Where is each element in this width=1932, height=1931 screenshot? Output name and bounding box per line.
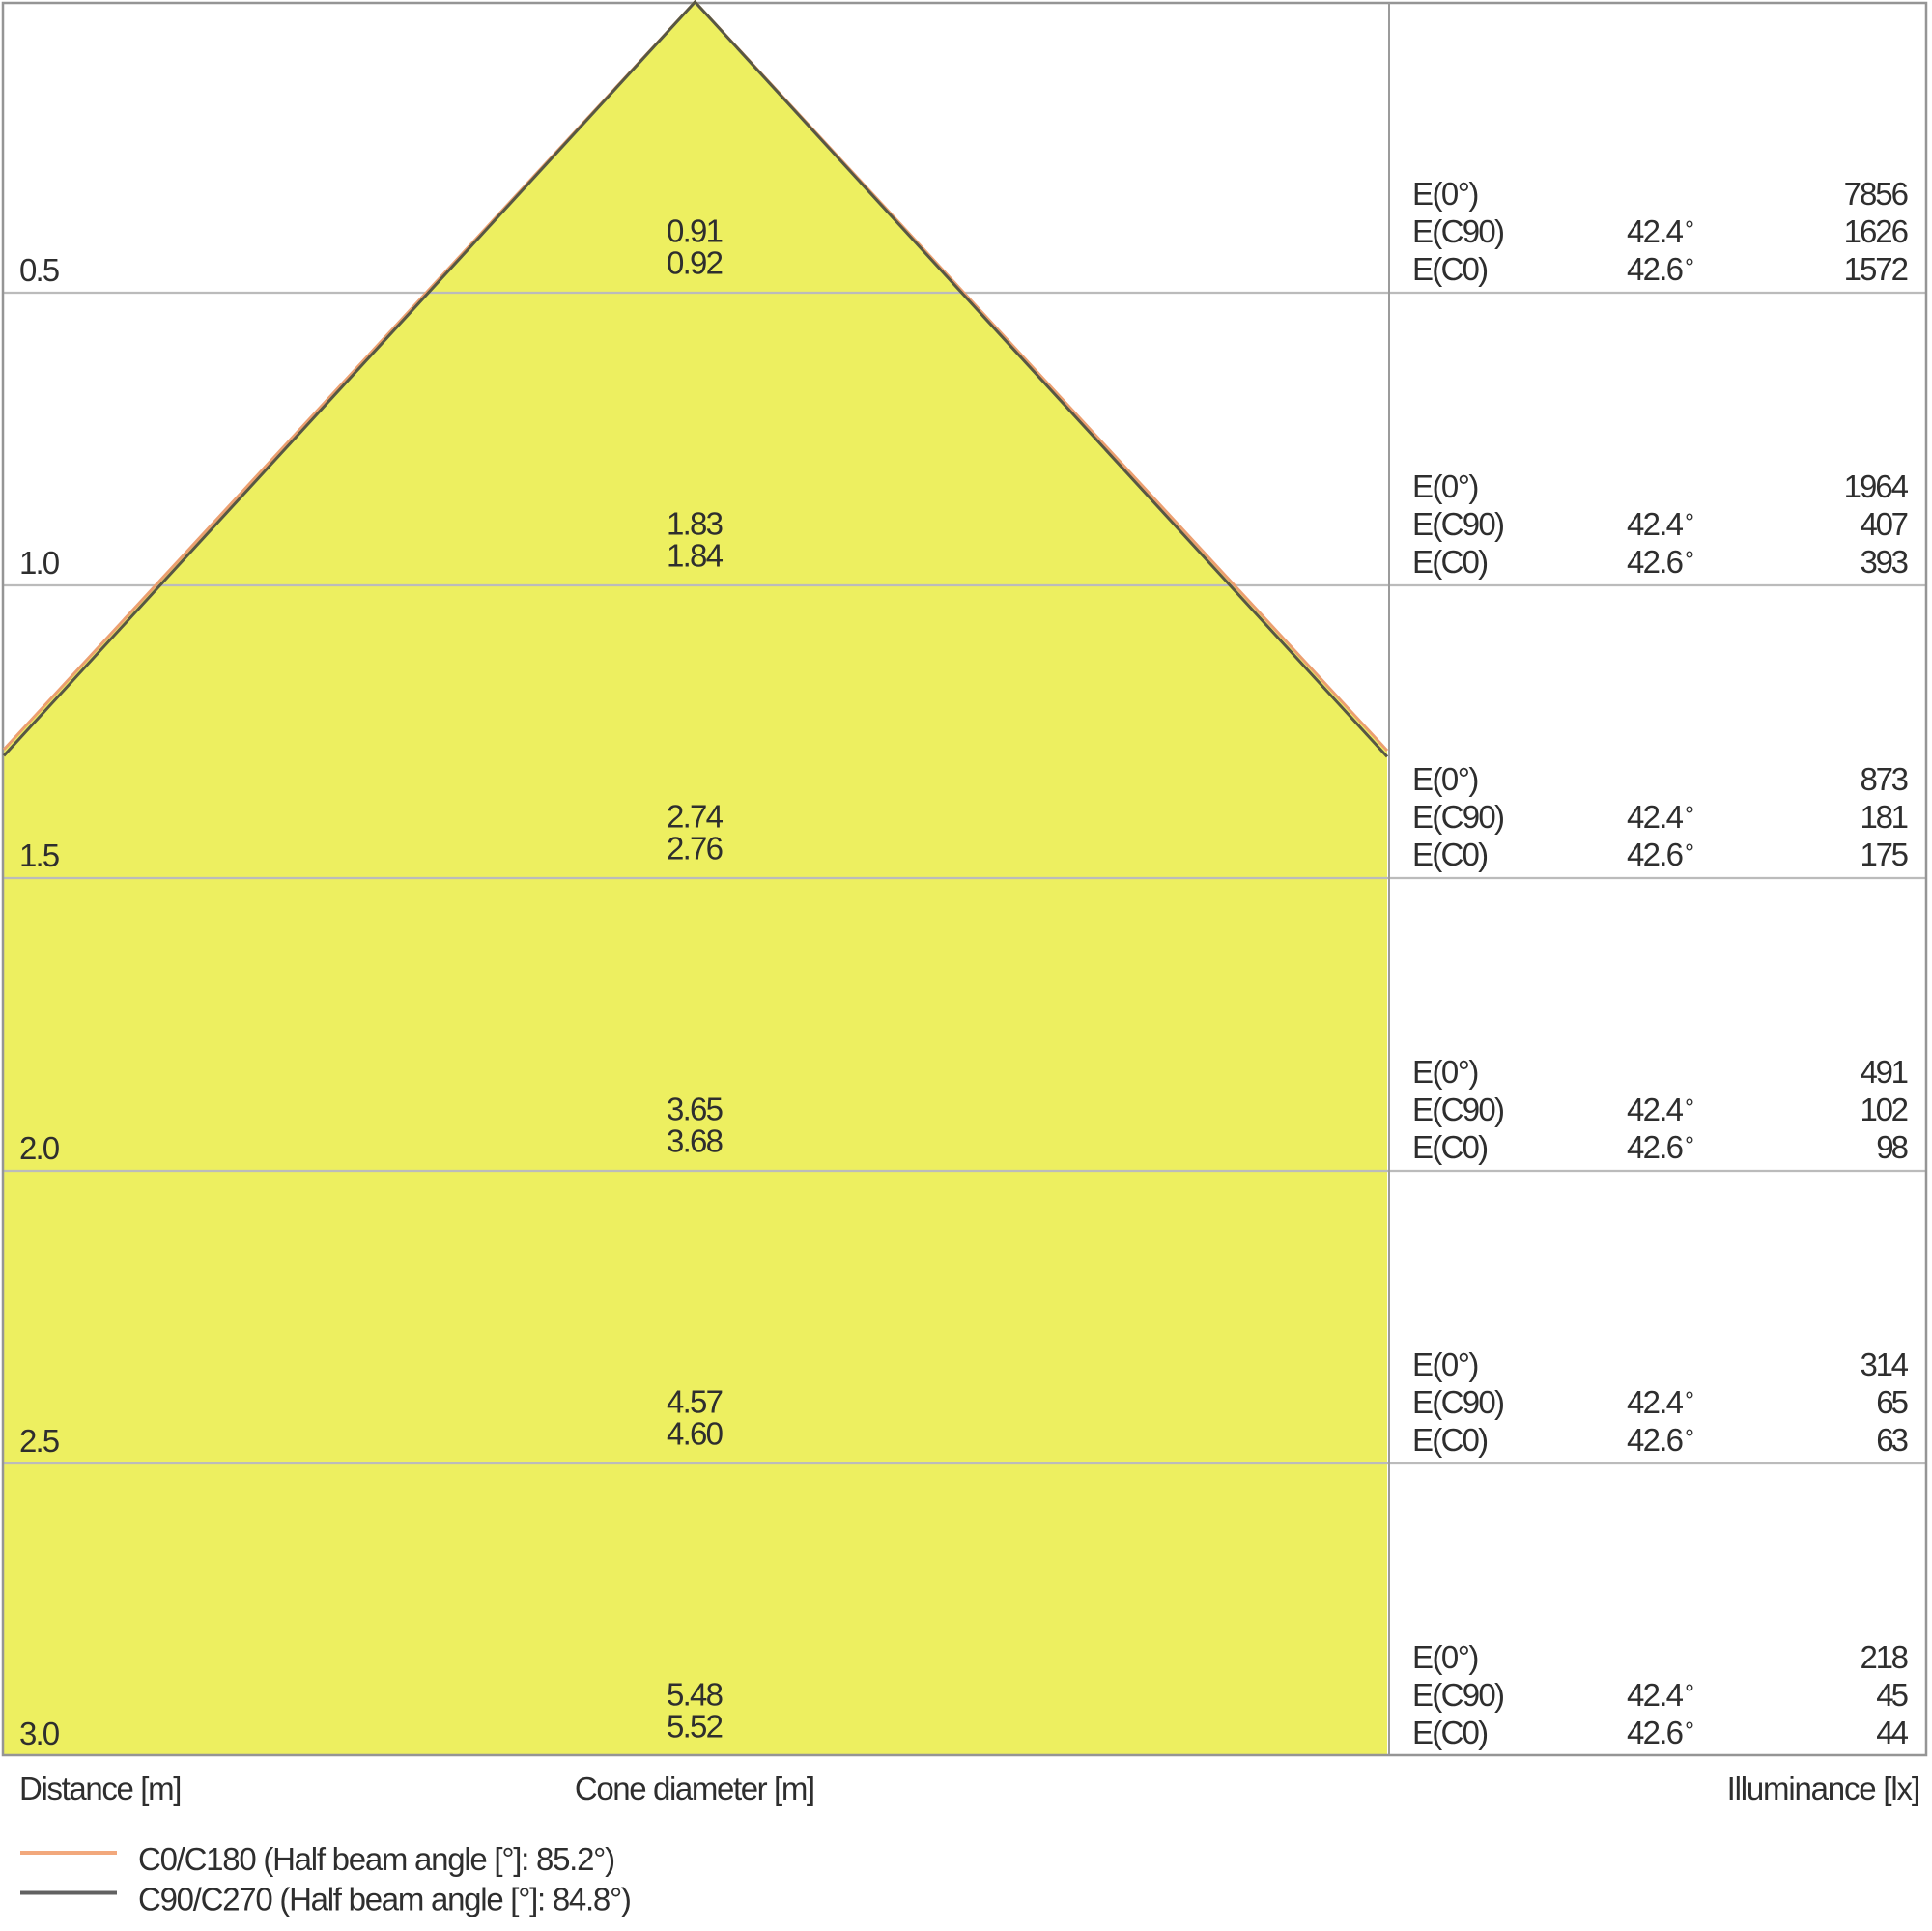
- svg-text:Distance [m]: Distance [m]: [19, 1771, 182, 1806]
- svg-text:2.74: 2.74: [667, 799, 724, 835]
- svg-text:°: °: [1685, 254, 1694, 281]
- svg-text:407: 407: [1861, 506, 1910, 542]
- svg-text:E(C90): E(C90): [1412, 1092, 1505, 1127]
- svg-text:5.52: 5.52: [667, 1709, 724, 1745]
- svg-text:65: 65: [1876, 1384, 1909, 1420]
- svg-text:393: 393: [1861, 544, 1910, 580]
- svg-text:2.5: 2.5: [19, 1423, 60, 1459]
- svg-text:E(C0): E(C0): [1412, 837, 1489, 872]
- svg-text:E(C0): E(C0): [1412, 544, 1489, 580]
- svg-text:42.4: 42.4: [1627, 213, 1684, 249]
- svg-text:°: °: [1685, 1132, 1694, 1159]
- svg-text:2.0: 2.0: [19, 1130, 60, 1166]
- svg-text:E(C0): E(C0): [1412, 251, 1489, 287]
- svg-text:E(0°): E(0°): [1412, 1347, 1479, 1382]
- svg-text:C90/C270 (Half beam angle [°]:: C90/C270 (Half beam angle [°]: 84.8°): [138, 1882, 632, 1917]
- svg-text:314: 314: [1861, 1347, 1910, 1382]
- svg-text:42.6: 42.6: [1627, 1422, 1684, 1458]
- svg-text:1.83: 1.83: [667, 506, 724, 542]
- svg-text:5.48: 5.48: [667, 1677, 724, 1713]
- svg-text:E(C90): E(C90): [1412, 506, 1505, 542]
- svg-text:0.92: 0.92: [667, 245, 724, 281]
- svg-text:42.6: 42.6: [1627, 1715, 1684, 1750]
- svg-text:1572: 1572: [1844, 251, 1909, 287]
- svg-text:°: °: [1685, 1094, 1694, 1122]
- svg-text:1964: 1964: [1844, 469, 1909, 504]
- svg-text:63: 63: [1876, 1422, 1909, 1458]
- svg-text:°: °: [1685, 1387, 1694, 1414]
- svg-text:E(C90): E(C90): [1412, 799, 1505, 835]
- svg-text:E(C0): E(C0): [1412, 1422, 1489, 1458]
- svg-text:E(C0): E(C0): [1412, 1129, 1489, 1165]
- svg-text:3.68: 3.68: [667, 1123, 724, 1159]
- svg-text:42.6: 42.6: [1627, 544, 1684, 580]
- svg-text:E(0°): E(0°): [1412, 761, 1479, 797]
- svg-text:3.0: 3.0: [19, 1716, 60, 1751]
- svg-text:E(C90): E(C90): [1412, 1384, 1505, 1420]
- svg-text:42.6: 42.6: [1627, 837, 1684, 872]
- svg-text:E(0°): E(0°): [1412, 469, 1479, 504]
- svg-text:1626: 1626: [1844, 213, 1909, 249]
- svg-text:7856: 7856: [1844, 176, 1909, 212]
- svg-text:42.4: 42.4: [1627, 799, 1684, 835]
- svg-text:1.0: 1.0: [19, 545, 60, 581]
- svg-text:42.6: 42.6: [1627, 251, 1684, 287]
- svg-text:°: °: [1685, 839, 1694, 866]
- svg-text:°: °: [1685, 1680, 1694, 1707]
- svg-text:°: °: [1685, 509, 1694, 536]
- svg-text:181: 181: [1861, 799, 1910, 835]
- svg-text:E(0°): E(0°): [1412, 1054, 1479, 1090]
- svg-text:98: 98: [1876, 1129, 1909, 1165]
- svg-text:873: 873: [1861, 761, 1910, 797]
- svg-text:4.60: 4.60: [667, 1416, 724, 1452]
- svg-text:44: 44: [1876, 1715, 1909, 1750]
- svg-text:E(0°): E(0°): [1412, 176, 1479, 212]
- svg-text:4.57: 4.57: [667, 1384, 724, 1420]
- svg-text:42.4: 42.4: [1627, 1092, 1684, 1127]
- svg-text:E(0°): E(0°): [1412, 1639, 1479, 1675]
- svg-text:0.5: 0.5: [19, 252, 60, 288]
- svg-text:42.4: 42.4: [1627, 506, 1684, 542]
- svg-text:°: °: [1685, 802, 1694, 829]
- svg-text:102: 102: [1861, 1092, 1910, 1127]
- svg-text:°: °: [1685, 547, 1694, 574]
- svg-text:E(C90): E(C90): [1412, 1677, 1505, 1713]
- svg-text:491: 491: [1861, 1054, 1910, 1090]
- svg-text:C0/C180 (Half beam angle [°]:: C0/C180 (Half beam angle [°]: 85.2°): [138, 1841, 615, 1877]
- svg-text:°: °: [1685, 216, 1694, 243]
- svg-text:E(C0): E(C0): [1412, 1715, 1489, 1750]
- svg-text:42.4: 42.4: [1627, 1677, 1684, 1713]
- svg-text:°: °: [1685, 1718, 1694, 1745]
- svg-text:2.76: 2.76: [667, 831, 724, 866]
- svg-text:1.84: 1.84: [667, 538, 724, 574]
- svg-text:45: 45: [1876, 1677, 1909, 1713]
- svg-text:°: °: [1685, 1425, 1694, 1452]
- svg-text:218: 218: [1861, 1639, 1910, 1675]
- svg-text:175: 175: [1861, 837, 1910, 872]
- svg-text:Cone diameter [m]: Cone diameter [m]: [575, 1771, 815, 1806]
- svg-text:3.65: 3.65: [667, 1092, 724, 1127]
- svg-text:0.91: 0.91: [667, 213, 724, 249]
- svg-text:42.6: 42.6: [1627, 1129, 1684, 1165]
- svg-text:1.5: 1.5: [19, 838, 60, 873]
- svg-text:Illuminance [lx]: Illuminance [lx]: [1727, 1771, 1920, 1806]
- svg-text:42.4: 42.4: [1627, 1384, 1684, 1420]
- svg-text:E(C90): E(C90): [1412, 213, 1505, 249]
